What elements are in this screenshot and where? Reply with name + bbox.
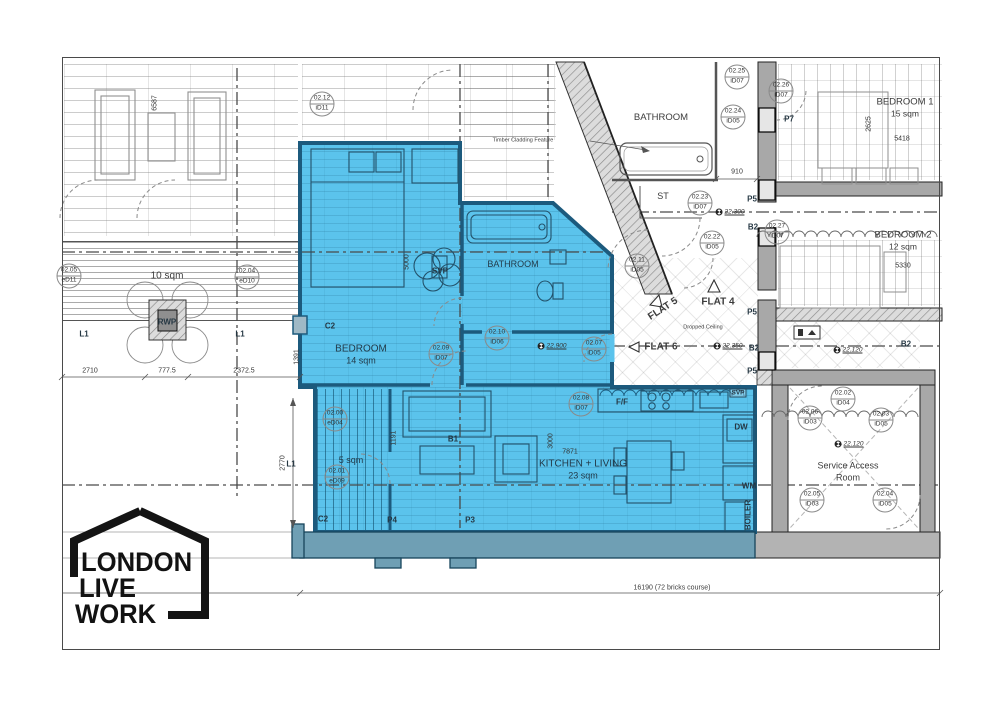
door-tag: 02.11iD05 xyxy=(625,254,650,279)
door-tag: 02.02iD04 xyxy=(831,387,856,412)
level-glyph xyxy=(536,341,546,351)
door-tag: 02.25iD07 xyxy=(725,65,750,90)
dimension-label: 5418 xyxy=(894,136,910,143)
dimension-label: 2770 xyxy=(280,455,287,471)
level-glyph xyxy=(712,341,722,351)
grid-marker: L1 xyxy=(79,330,88,339)
dimension-label: 2710 xyxy=(82,368,98,375)
door-tag: 02.01eD09 xyxy=(325,465,350,490)
grid-marker: BOILER xyxy=(744,500,753,530)
door-tag: 02.04eD10 xyxy=(235,265,260,290)
grid-marker: P5 xyxy=(747,367,757,376)
door-tag: 02.03iD05 xyxy=(869,408,894,433)
grid-marker: DW xyxy=(734,423,747,432)
dimension-label: 910 xyxy=(731,169,743,176)
level-glyph xyxy=(833,439,843,449)
grid-marker: B1 xyxy=(448,435,458,444)
grid-marker: P5 xyxy=(747,195,757,204)
dimension-label: 2625 xyxy=(866,116,873,132)
grid-marker: P3 xyxy=(465,516,475,525)
dimension-label: 5330 xyxy=(895,263,911,270)
dimension-label: 7871 xyxy=(562,449,578,456)
grid-marker: B2 xyxy=(749,344,759,353)
dimension-label: 5000 xyxy=(404,254,411,270)
grid-marker: F/F xyxy=(616,398,628,407)
door-tag: 02.22iD05 xyxy=(700,231,725,256)
grid-marker: C2 xyxy=(318,515,328,524)
logo-line-3: WORK xyxy=(75,599,156,630)
grid-marker: SVP xyxy=(729,389,746,398)
grid-marker: B2 xyxy=(748,223,758,232)
dimension-label: 1391 xyxy=(294,349,301,365)
door-tag: 02.08iD07 xyxy=(569,392,594,417)
level-marker: 22.350 xyxy=(714,343,743,350)
grid-marker: L1 xyxy=(235,330,244,339)
grid-marker: P4 xyxy=(387,516,397,525)
level-marker: 22.120 xyxy=(835,441,864,448)
door-tag: 02.04iD05 xyxy=(873,488,898,513)
dimension-label: 777.5 xyxy=(158,368,176,375)
door-tag: 02.07iD05 xyxy=(582,337,607,362)
door-tag: 02.10iD06 xyxy=(485,326,510,351)
door-tag: 02.24iD05 xyxy=(721,105,746,130)
level-marker: 22.900 xyxy=(538,343,567,350)
grid-marker: P5 xyxy=(747,308,757,317)
grid-marker: C2 xyxy=(325,322,335,331)
logo-london-live-work: LONDON LIVE WORK xyxy=(62,505,222,640)
door-tag: 02.00eD04 xyxy=(323,407,348,432)
grid-marker: SVP xyxy=(432,267,448,276)
dimension-label: 2372.5 xyxy=(233,368,254,375)
grid-marker: WM xyxy=(742,482,756,491)
level-glyph xyxy=(832,345,842,355)
grid-marker: B2 xyxy=(901,340,911,349)
door-tag: 02.06iD03 xyxy=(798,406,823,431)
dimension-label: 6587 xyxy=(152,95,159,111)
door-tag: 02.09iD07 xyxy=(429,342,454,367)
dimension-label: 3000 xyxy=(548,433,555,449)
level-marker: 22.120 xyxy=(834,347,863,354)
door-tag: 02.12iD11 xyxy=(310,92,335,117)
level-marker: 22.300 xyxy=(716,209,745,216)
door-tag: 02.23iD07 xyxy=(688,191,713,216)
door-tag: 02.26iD07 xyxy=(769,79,794,104)
door-tag: 02.27iD07 xyxy=(765,220,790,245)
level-glyph xyxy=(714,207,724,217)
floorplan-sheet: BEDROOM 14 sqm BATHROOM KITCHEN + LIVING… xyxy=(0,0,1000,707)
door-tag: 02.05eD11 xyxy=(57,264,82,289)
dimension-label: 1191 xyxy=(391,430,398,445)
grid-marker: RWP xyxy=(158,318,177,327)
grid-marker: P7 xyxy=(784,115,794,124)
grid-marker: L1 xyxy=(286,460,295,469)
door-tag: 02.05iD03 xyxy=(800,488,825,513)
